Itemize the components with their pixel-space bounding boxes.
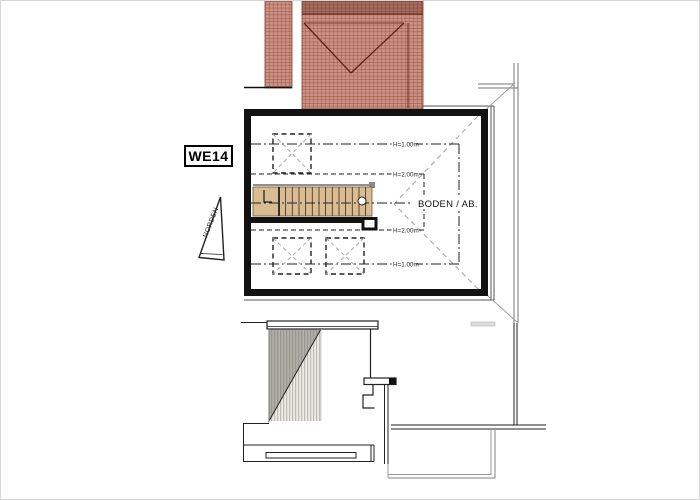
height-label-1m-bottom: H=1.00m [393, 262, 419, 269]
terrace-gray-outer [388, 429, 495, 478]
height-label-1m-top: H=1.00m [393, 142, 419, 149]
lower-floor-group [241, 321, 546, 478]
terrace-gray-inner [388, 429, 491, 475]
stair-wall-band [251, 217, 363, 223]
lower-lintel-end [389, 378, 396, 385]
north-arrow-group: NORDEN [199, 197, 224, 260]
roof-main [302, 1, 423, 109]
roof-ridge-shade [302, 1, 423, 13]
floorplan-canvas: H=1.00m H=2.00m H=2.00m H=1.00m BODEN / … [0, 0, 700, 500]
newel-post [363, 219, 376, 230]
terrace-outline-gray [388, 429, 495, 478]
lower-step-jog [363, 385, 375, 409]
balcony-parapet [267, 321, 378, 329]
unit-label-box: WE14 [184, 145, 233, 167]
room-label: BODEN / AB. [418, 199, 478, 210]
stair-walkline-start-circle [358, 197, 366, 205]
eave-shadow-sliver [471, 322, 495, 326]
height-label-2m-top: H=2.00m [393, 172, 419, 179]
terrace-railing [266, 453, 356, 459]
height-label-2m-bottom: H=2.00m [393, 228, 419, 235]
roof-strip [265, 1, 292, 88]
floor-plan-svg: H=1.00m H=2.00m H=2.00m H=1.00m BODEN / … [1, 1, 700, 500]
corner-diagonal-bottom [487, 295, 517, 322]
roof-group [244, 1, 423, 109]
